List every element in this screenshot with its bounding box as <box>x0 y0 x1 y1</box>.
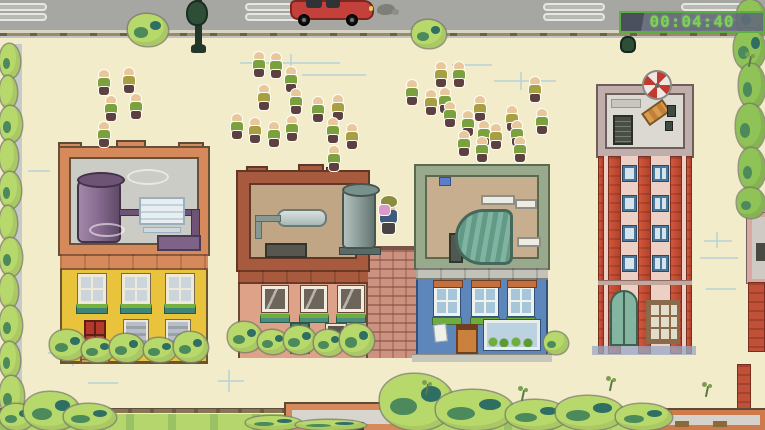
arch-door <box>610 290 638 346</box>
crowd-member <box>311 97 325 123</box>
sprig-leaf <box>518 386 523 391</box>
leaf-patch <box>55 343 68 353</box>
leaf-patch <box>566 410 590 421</box>
leaf-patch <box>3 322 11 334</box>
window <box>122 274 150 304</box>
game-viewport[interactable]: 00:04:40 <box>0 0 765 430</box>
bush <box>0 206 17 240</box>
crowd-legs <box>232 131 242 139</box>
window <box>623 226 636 241</box>
umbrella-icon <box>642 70 672 100</box>
crowd-legs <box>530 94 540 102</box>
leaf-patch <box>447 407 475 420</box>
crowd-member <box>473 96 487 122</box>
bush <box>0 140 18 174</box>
crowd-member <box>424 90 438 116</box>
window <box>653 166 668 181</box>
leaf-patch <box>3 187 11 199</box>
window <box>262 286 288 312</box>
leaf-patch <box>288 338 300 347</box>
lamp-base <box>191 44 206 53</box>
crowd-legs <box>124 85 134 93</box>
bush <box>0 172 21 208</box>
sketch-mark <box>28 170 50 172</box>
carried-item <box>379 205 390 215</box>
hydrant <box>620 36 636 53</box>
leaf-patch <box>5 415 17 423</box>
leaf-patch <box>331 336 339 343</box>
window <box>166 274 194 304</box>
crowd-legs <box>515 154 525 162</box>
leaf-patch <box>743 166 752 179</box>
crowd-member <box>129 94 143 120</box>
poster <box>433 323 448 342</box>
crowd-legs <box>445 119 455 127</box>
leaf-patch <box>262 340 273 348</box>
sidewalk-strip <box>412 354 552 362</box>
leaf-patch <box>540 407 557 415</box>
crowd-member <box>489 124 503 150</box>
sketch-mark <box>218 380 244 382</box>
bush <box>110 334 144 362</box>
sprig-leaf <box>524 388 528 392</box>
crowd-member <box>452 62 466 88</box>
bush <box>0 274 18 308</box>
leaf-patch <box>593 403 612 413</box>
window <box>301 286 327 312</box>
crowd-legs <box>259 102 269 110</box>
crowd-legs <box>477 154 487 162</box>
leaf-patch <box>150 21 161 30</box>
crowd-member <box>104 96 118 122</box>
leaf-patch <box>93 410 108 417</box>
roof-unit <box>613 115 633 145</box>
leaf-patch <box>254 422 274 426</box>
leaf-patch <box>740 123 750 138</box>
car-headlight <box>369 6 373 11</box>
crowd-member <box>327 146 341 172</box>
window <box>508 286 534 316</box>
sprig <box>517 386 529 402</box>
brick-wall <box>748 282 765 352</box>
leaf-patch <box>162 343 171 350</box>
crowd-member <box>285 116 299 142</box>
sketch-mark <box>716 232 718 248</box>
water-tank <box>342 187 376 249</box>
sketch-mark <box>88 382 118 384</box>
bush <box>544 332 568 354</box>
building-tower-facade <box>598 156 692 354</box>
brick-pilaster <box>686 156 692 354</box>
bush <box>412 20 446 48</box>
roof-object <box>667 105 676 117</box>
leaf-patch <box>302 332 311 340</box>
window <box>653 226 668 241</box>
crowd-legs <box>271 70 281 78</box>
crowd-member <box>269 53 283 79</box>
crowd-legs <box>291 106 301 114</box>
crowd-member <box>252 52 266 78</box>
building-tower <box>598 86 692 354</box>
lane-dash <box>681 3 743 11</box>
belt-course <box>598 280 692 285</box>
bush <box>50 330 86 360</box>
crowd-legs <box>269 139 279 147</box>
leaf-patch <box>345 337 357 347</box>
skylight <box>139 197 185 225</box>
leaf-patch <box>148 348 160 356</box>
skylight-base <box>143 227 181 233</box>
building-blue-facade <box>416 280 548 354</box>
player-character <box>378 196 400 238</box>
crowd-legs <box>313 114 323 122</box>
brick-pilaster <box>598 156 604 354</box>
tree <box>739 64 765 108</box>
crowd-legs <box>329 163 339 171</box>
bush <box>340 324 374 356</box>
leaf-patch <box>431 26 441 34</box>
crowd-member <box>457 131 471 157</box>
leaf-patch <box>233 335 245 345</box>
leaf-patch <box>647 410 663 417</box>
crowd-legs <box>131 111 141 119</box>
sprig-leaf <box>708 384 712 388</box>
red-car <box>290 0 374 26</box>
crowd-member <box>405 80 419 106</box>
lamp-head <box>186 0 208 26</box>
sprig-leaf <box>702 382 707 387</box>
sketch-mark <box>228 370 230 392</box>
roof-pipe <box>255 215 281 222</box>
sprig-leaf <box>745 52 750 57</box>
bush <box>0 238 22 276</box>
leaf-patch <box>390 398 417 416</box>
street-lamp <box>184 0 212 54</box>
crowd-legs <box>99 87 109 95</box>
roof-object <box>756 243 765 261</box>
exhaust-smoke <box>377 4 395 15</box>
leaf-patch <box>70 337 80 345</box>
bush <box>284 326 316 354</box>
crowd-legs <box>250 135 260 143</box>
crowd-member <box>248 118 262 144</box>
sprig <box>421 380 433 396</box>
roof-duct <box>277 209 327 227</box>
crowd-member <box>528 77 542 103</box>
cornice <box>238 270 368 284</box>
leaf-patch <box>193 339 203 347</box>
shop-window <box>484 320 540 350</box>
leaf-patch <box>624 415 644 423</box>
leaf-patch <box>134 27 148 37</box>
bush <box>616 404 672 430</box>
lane-dash <box>0 3 47 11</box>
bush <box>436 390 514 430</box>
sprig <box>744 52 756 68</box>
bush <box>174 332 208 362</box>
car-wheel <box>346 14 358 26</box>
tree <box>737 188 765 218</box>
window <box>653 256 668 271</box>
leaf-patch <box>515 413 537 423</box>
bush <box>128 14 168 46</box>
crowd-legs <box>328 135 338 143</box>
roof-object <box>713 421 727 427</box>
player-legs <box>382 223 395 234</box>
building-blue-roof <box>416 166 548 268</box>
bush <box>0 106 22 142</box>
car-window <box>306 0 322 8</box>
leaf-patch <box>335 422 355 425</box>
leaf-patch <box>247 329 257 337</box>
leaf-patch <box>32 408 52 420</box>
curb-line <box>0 33 765 36</box>
flower-box <box>164 304 196 314</box>
partial-building <box>747 213 765 283</box>
leaf-patch <box>359 331 369 340</box>
tree <box>736 104 765 150</box>
flower-box <box>120 304 152 314</box>
crowd-member <box>443 102 457 128</box>
bush <box>556 396 624 430</box>
leaf-patch <box>179 345 191 355</box>
sketch-cloud <box>89 223 125 237</box>
roof-object <box>665 121 673 131</box>
window <box>623 166 636 181</box>
car-window <box>326 0 340 8</box>
roof-object <box>439 177 451 186</box>
crowd-member <box>475 137 489 163</box>
crowd-member <box>345 124 359 150</box>
flower-box <box>76 304 108 314</box>
sketch-cloud <box>127 169 169 185</box>
crowd-legs <box>254 69 264 77</box>
cornice <box>416 268 548 280</box>
crowd-legs <box>459 148 469 156</box>
window <box>434 286 460 316</box>
sketch-mark <box>704 240 732 242</box>
sketch-mark <box>302 74 366 76</box>
roof-object <box>675 421 689 427</box>
crowd-legs <box>287 133 297 141</box>
ac-unit <box>481 195 515 205</box>
ac-unit <box>157 235 201 251</box>
window <box>653 196 668 211</box>
roof-vent <box>611 99 641 108</box>
building-yellow-roof <box>60 148 208 254</box>
window <box>623 196 636 211</box>
crowd-member <box>230 114 244 140</box>
leaf-patch <box>71 415 90 423</box>
leaf-patch <box>751 37 760 49</box>
leaf-patch <box>318 341 329 349</box>
crowd-legs <box>475 113 485 121</box>
tree <box>739 148 765 190</box>
sprig-leaf <box>612 378 616 382</box>
window <box>338 286 364 312</box>
bush <box>296 420 366 430</box>
crowd-legs <box>99 139 109 147</box>
leaf-patch <box>741 201 751 211</box>
building-blue <box>416 166 548 362</box>
sketch-mark <box>706 288 736 290</box>
ac-unit <box>265 243 307 258</box>
crowd-legs <box>426 107 436 115</box>
leaf-patch <box>3 58 10 69</box>
bush <box>64 404 116 430</box>
leaf-patch <box>3 254 11 266</box>
leaf-patch <box>479 399 501 410</box>
leaf-patch <box>275 335 283 342</box>
leaf-patch <box>547 341 556 348</box>
grid-window <box>646 300 680 344</box>
sprig <box>605 376 617 392</box>
timer-display: 00:04:40 <box>619 11 765 33</box>
crowd-legs <box>537 126 547 134</box>
window <box>78 274 106 304</box>
crowd-member <box>326 118 340 144</box>
bush <box>144 338 176 362</box>
bush <box>0 76 17 108</box>
leaf-patch <box>417 32 429 41</box>
bush <box>228 322 262 352</box>
crowd-member <box>97 70 111 96</box>
crowd-legs <box>491 141 501 149</box>
sprig-leaf <box>428 382 432 386</box>
crowd-member <box>267 122 281 148</box>
bush <box>0 306 22 344</box>
sketch-mark <box>520 72 522 90</box>
leaf-patch <box>277 419 293 423</box>
sketch-mark <box>700 257 738 259</box>
flower-box <box>260 314 290 323</box>
bush <box>246 416 302 430</box>
sprig-leaf <box>751 54 755 58</box>
ac-unit <box>515 199 537 209</box>
leaf-patch <box>115 346 127 355</box>
sprig-leaf <box>422 380 427 385</box>
cornice <box>60 254 208 270</box>
building-pink-roof <box>238 172 368 270</box>
sprig-leaf <box>606 376 611 381</box>
atrium-skylight <box>455 209 513 265</box>
leaf-patch <box>86 348 98 356</box>
crowd-member <box>434 62 448 88</box>
crowd-legs <box>436 79 446 87</box>
crowd-legs <box>106 113 116 121</box>
lane-dash <box>543 3 605 11</box>
crowd-legs <box>454 79 464 87</box>
leaf-patch <box>100 343 109 350</box>
bush <box>0 44 20 78</box>
window <box>623 256 636 271</box>
lane-dash <box>543 13 605 21</box>
crowd-member <box>257 85 271 111</box>
window <box>472 286 498 316</box>
crowd-member <box>535 109 549 135</box>
car-wheel <box>298 14 310 26</box>
crowd-legs <box>407 97 417 105</box>
door <box>456 324 478 354</box>
sprig <box>701 382 713 398</box>
lane-dash <box>0 13 47 21</box>
sketch-mark <box>494 80 556 82</box>
crowd-member <box>513 137 527 163</box>
building-shadow <box>592 346 696 355</box>
crowd-member <box>289 89 303 115</box>
building-tower-roof <box>598 86 692 156</box>
crowd-member <box>122 68 136 94</box>
bush <box>0 342 20 378</box>
crowd-member <box>97 122 111 148</box>
leaf-patch <box>743 82 752 96</box>
flower-box <box>336 314 366 323</box>
leaf-patch <box>129 340 139 348</box>
crowd-legs <box>347 141 357 149</box>
ac-unit <box>517 237 541 247</box>
leaf-patch <box>3 357 10 369</box>
leaf-patch <box>3 121 11 133</box>
leaf-patch <box>306 424 331 427</box>
